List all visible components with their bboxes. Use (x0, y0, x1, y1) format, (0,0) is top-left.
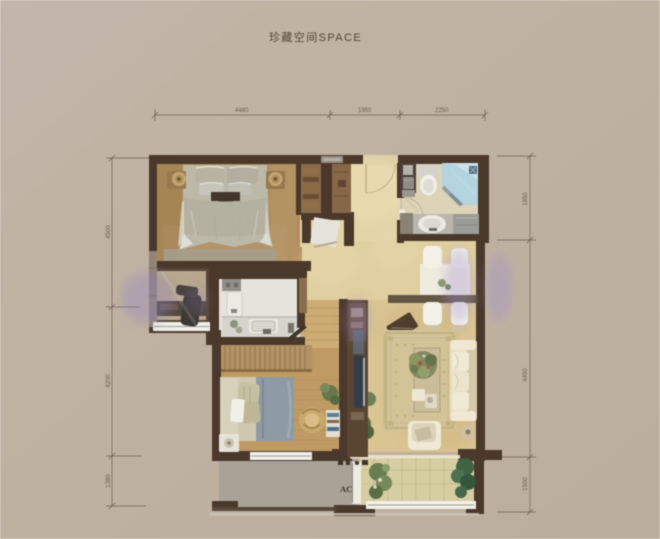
svg-text:AC: AC (340, 484, 352, 494)
svg-text:1500: 1500 (523, 477, 529, 491)
svg-text:1950: 1950 (358, 108, 372, 114)
svg-text:4490: 4490 (523, 368, 529, 382)
svg-text:4480: 4480 (235, 108, 249, 114)
svg-text:4200: 4200 (106, 374, 112, 388)
svg-text:1380: 1380 (106, 474, 112, 488)
svg-text:1850: 1850 (523, 192, 529, 206)
svg-text:2250: 2250 (435, 108, 449, 114)
svg-text:4500: 4500 (106, 225, 112, 239)
svg-text:珍藏空间SPACE: 珍藏空间SPACE (269, 30, 362, 44)
